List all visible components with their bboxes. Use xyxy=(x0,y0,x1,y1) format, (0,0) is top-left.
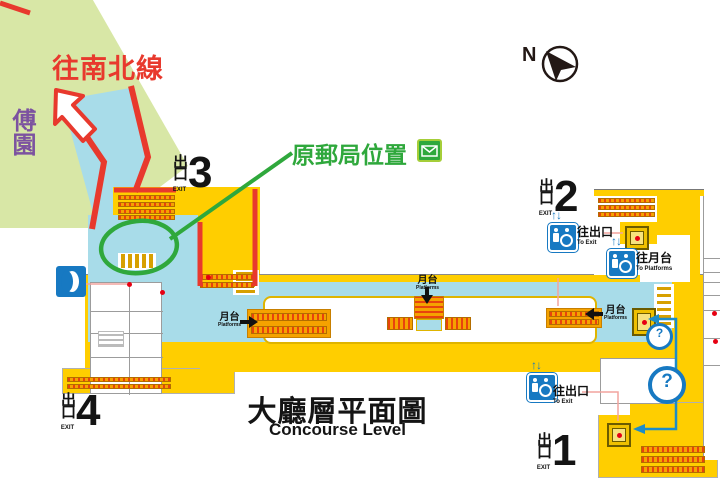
exit4-sign: 出口EXIT 4 xyxy=(60,392,100,431)
platform-arrow-left xyxy=(585,308,603,320)
to-platform-label: 往月台 xyxy=(636,252,672,265)
red-wall-corner xyxy=(0,3,30,13)
exit3-sign: 出口EXIT 3 xyxy=(172,154,212,193)
post-office-label: 原郵局位置 xyxy=(292,136,407,170)
platform-label-west: 月台Platforms xyxy=(218,313,241,328)
exit1-sign: 出口EXIT 1 xyxy=(536,432,576,471)
platform-label-center: 月台Platforms xyxy=(416,276,439,291)
public-phone-icon xyxy=(56,266,86,297)
updown-arrows: ↑↓ xyxy=(611,236,621,246)
post-office-circle xyxy=(98,217,179,277)
info-counter-icon: ? xyxy=(648,366,686,404)
platform-arrow-right xyxy=(240,316,258,328)
info-point-icon: ? xyxy=(646,323,673,350)
updown-arrows: ↑↓ xyxy=(531,360,541,370)
to-platform-label-en: To Platforms xyxy=(636,266,672,273)
elevator-route-arrowhead xyxy=(633,424,645,434)
compass-north-label: N xyxy=(522,44,536,67)
to-ns-line-label: 往南北線 xyxy=(52,47,164,86)
mailbox-icon xyxy=(417,139,442,162)
platform-label-east: 月台Platforms xyxy=(604,306,627,321)
to-exit-label: 往出口 xyxy=(577,226,613,239)
to-exit-label-en: To Exit xyxy=(577,240,597,247)
to-exit-label: 往出口 xyxy=(553,385,589,398)
updown-arrows: ↑↓ xyxy=(551,210,561,220)
elevator-icon-exit2-toexit xyxy=(548,223,578,252)
to-exit-label-en: To Exit xyxy=(553,399,573,406)
floor-title-en: Concourse Level xyxy=(240,420,435,440)
red-wall-right xyxy=(131,86,148,192)
station-floorplan: N 往南北線 傅園 原郵局位置 出口EXIT 3 出口EXIT 2 出口EXIT… xyxy=(0,0,720,492)
transfer-arrow xyxy=(55,90,95,141)
fu-garden-label: 傅園 xyxy=(8,108,34,156)
elevator-icon-exit2-toplatform xyxy=(607,249,637,278)
